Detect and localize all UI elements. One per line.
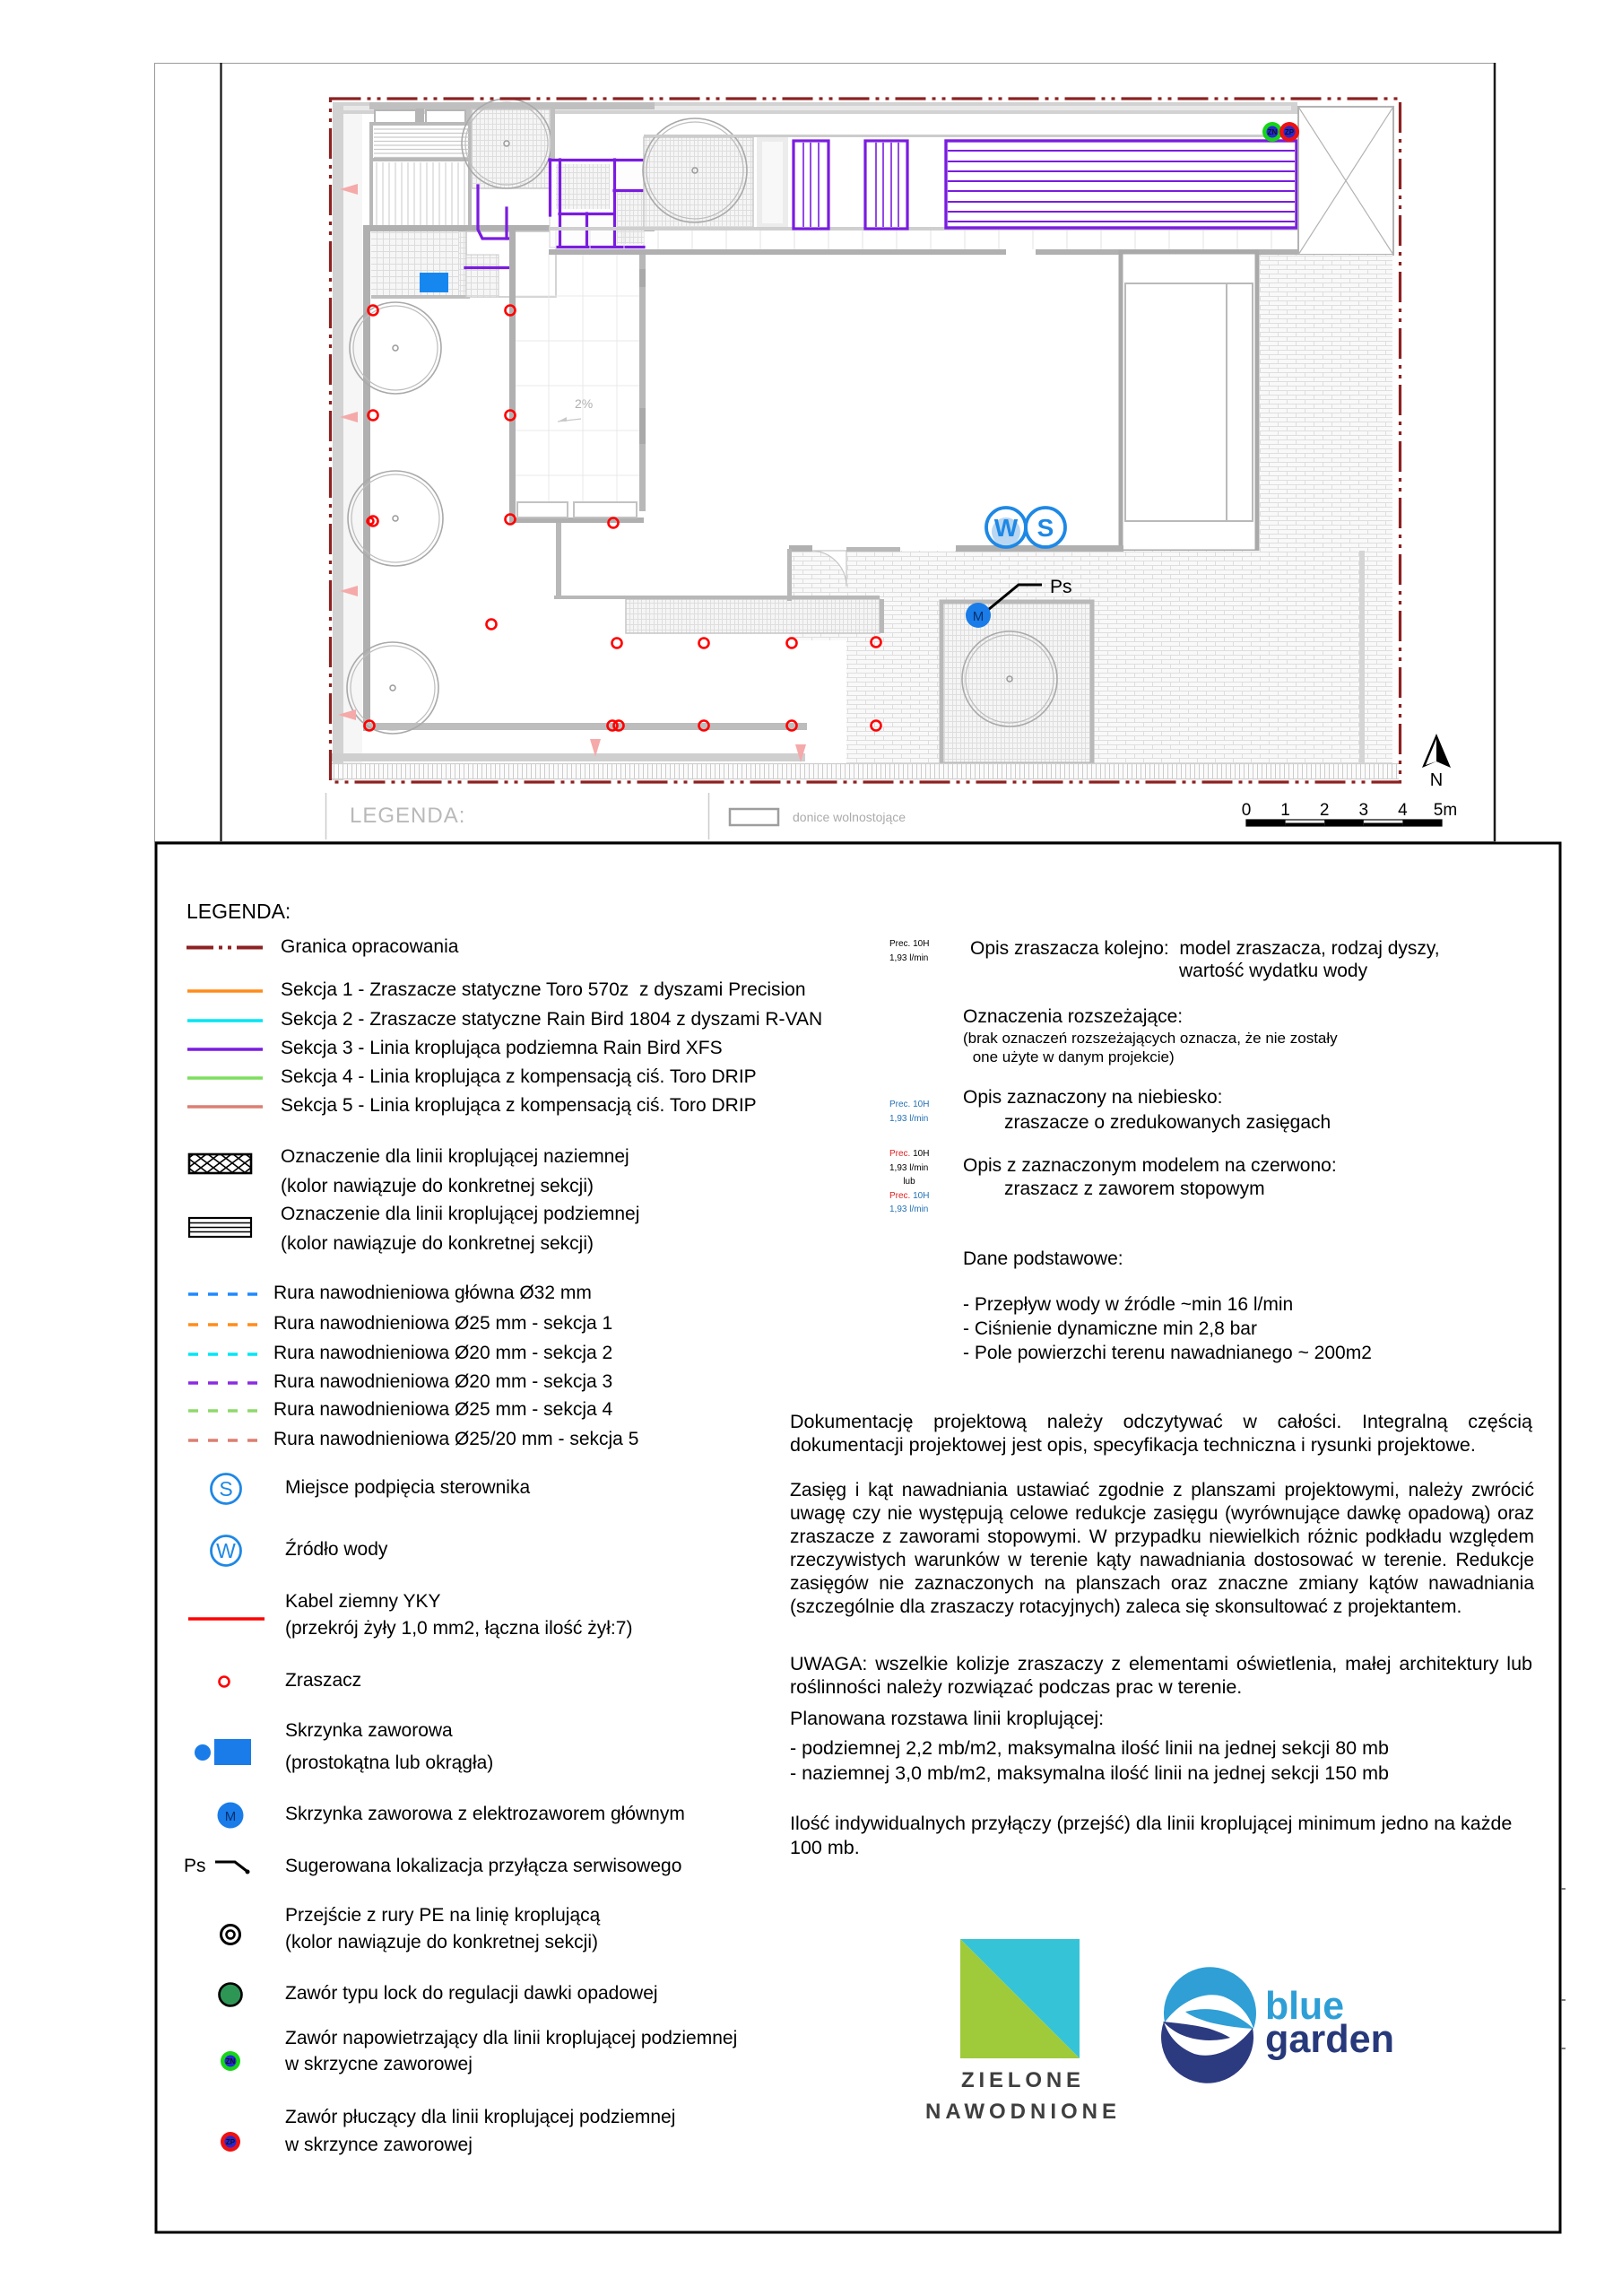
svg-text:ZIELONE: ZIELONE xyxy=(961,2068,1080,2092)
svg-text:ZP: ZP xyxy=(1285,128,1295,136)
svg-text:W: W xyxy=(994,514,1019,542)
svg-text:ZN: ZN xyxy=(226,2057,236,2066)
svg-text:N: N xyxy=(1430,770,1443,790)
svg-text:ZN: ZN xyxy=(1268,128,1278,136)
svg-text:1: 1 xyxy=(1280,801,1290,820)
svg-text:5m: 5m xyxy=(1434,801,1457,820)
svg-text:0: 0 xyxy=(1242,801,1252,820)
svg-text:S: S xyxy=(219,1477,232,1500)
svg-text:M: M xyxy=(973,609,984,624)
svg-text:S: S xyxy=(1037,514,1054,542)
svg-text:garden: garden xyxy=(1265,2017,1394,2061)
svg-text:Ps: Ps xyxy=(1050,577,1072,597)
svg-text:4: 4 xyxy=(1398,801,1408,820)
svg-text:3: 3 xyxy=(1359,801,1369,820)
svg-text:2: 2 xyxy=(1320,801,1330,820)
svg-text:M: M xyxy=(225,1809,237,1824)
svg-text:ZP: ZP xyxy=(226,2138,236,2146)
svg-text:W: W xyxy=(216,1539,236,1562)
svg-text:NAWODNIONE: NAWODNIONE xyxy=(925,2100,1116,2124)
